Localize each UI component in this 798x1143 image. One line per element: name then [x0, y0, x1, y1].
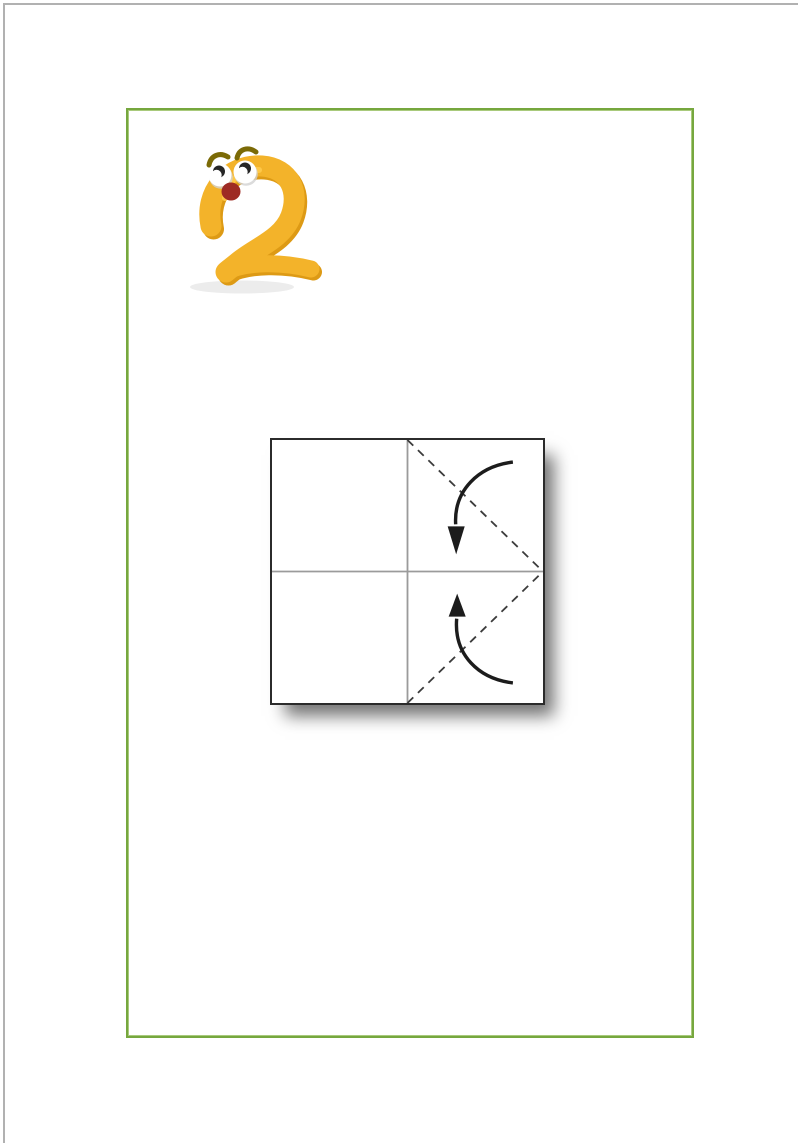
origami-paper: [272, 440, 543, 703]
eyebrow-left-icon: [209, 155, 228, 165]
worksheet-page: 2: [0, 0, 798, 1143]
ground-shadow: [190, 281, 294, 294]
mouth-icon: [222, 183, 241, 201]
fold-line-top: [408, 440, 544, 571]
fold-line-bottom: [408, 572, 544, 703]
origami-diagram: [270, 438, 545, 705]
numeral-2-illustration: [195, 146, 323, 296]
arrowhead-down-icon: [448, 526, 465, 554]
numeral-2-figure: 2: [195, 146, 323, 296]
fold-arrow-bottom: [449, 594, 513, 683]
arrowhead-up-icon: [449, 594, 466, 617]
fold-arrow-top: [448, 462, 513, 554]
